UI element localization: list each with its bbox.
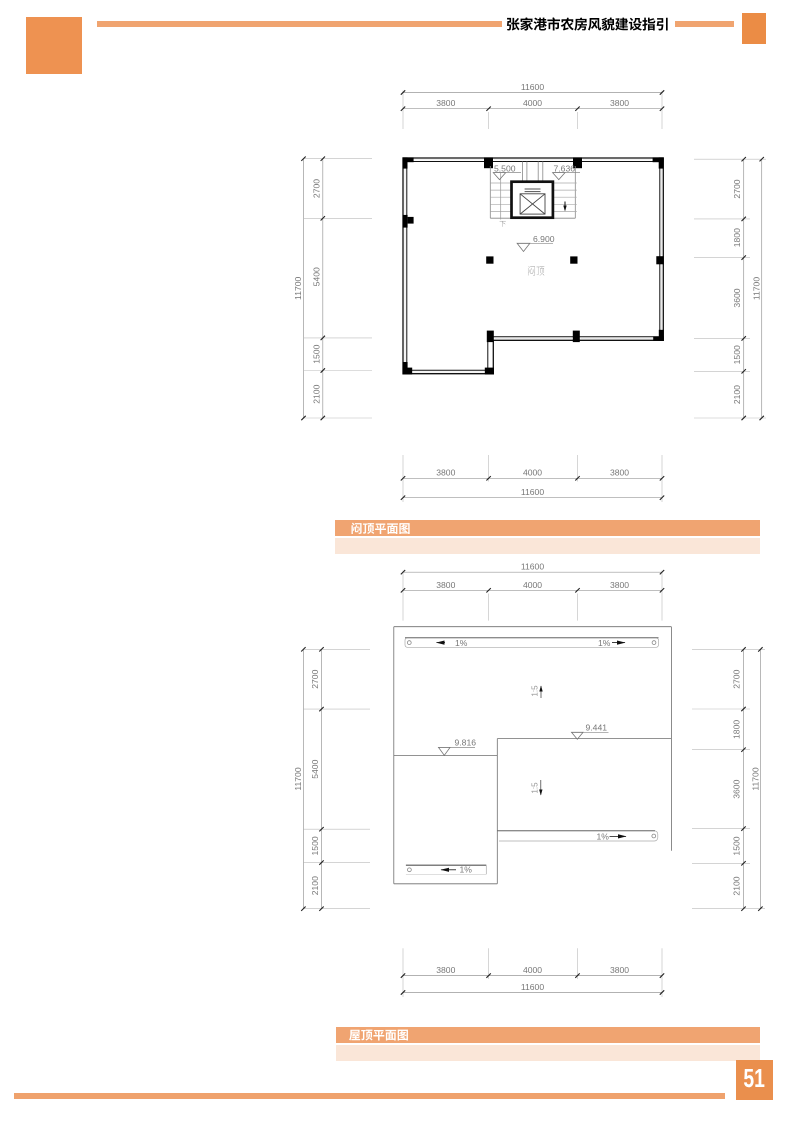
svg-text:9.816: 9.816 <box>455 738 477 748</box>
svg-text:1800: 1800 <box>732 720 742 739</box>
svg-text:1%: 1% <box>455 638 468 648</box>
svg-text:1800: 1800 <box>732 228 742 247</box>
svg-text:9.441: 9.441 <box>586 723 608 733</box>
svg-text:11700: 11700 <box>752 277 762 300</box>
svg-text:11600: 11600 <box>521 982 544 992</box>
svg-text:7.636: 7.636 <box>554 164 576 174</box>
svg-text:4000: 4000 <box>523 965 542 975</box>
svg-text:2100: 2100 <box>312 384 322 403</box>
svg-text:2100: 2100 <box>732 876 742 895</box>
svg-text:11700: 11700 <box>293 276 303 299</box>
svg-text:1%: 1% <box>598 638 611 648</box>
svg-text:11600: 11600 <box>521 82 544 92</box>
svg-text:3800: 3800 <box>610 98 629 108</box>
svg-text:5400: 5400 <box>310 759 320 778</box>
svg-text:11600: 11600 <box>521 562 544 572</box>
svg-text:4000: 4000 <box>523 98 542 108</box>
svg-text:1%: 1% <box>597 832 610 842</box>
svg-text:3600: 3600 <box>732 288 742 307</box>
svg-text:3800: 3800 <box>436 468 455 478</box>
svg-text:1500: 1500 <box>312 344 322 363</box>
svg-text:2700: 2700 <box>732 669 742 688</box>
svg-text:3800: 3800 <box>436 98 455 108</box>
svg-text:3800: 3800 <box>610 468 629 478</box>
svg-text:4000: 4000 <box>523 468 542 478</box>
svg-text:6.900: 6.900 <box>533 234 555 244</box>
svg-text:1%: 1% <box>460 865 473 875</box>
svg-text:1500: 1500 <box>732 345 742 364</box>
svg-text:3800: 3800 <box>436 580 455 590</box>
svg-text:1500: 1500 <box>310 836 320 855</box>
svg-text:11600: 11600 <box>521 487 544 497</box>
svg-text:5.500: 5.500 <box>494 164 516 174</box>
svg-text:11700: 11700 <box>751 767 761 790</box>
svg-text:2100: 2100 <box>310 876 320 895</box>
svg-text:3800: 3800 <box>436 965 455 975</box>
svg-text:4000: 4000 <box>523 580 542 590</box>
svg-text:11700: 11700 <box>293 767 303 790</box>
svg-text:1500: 1500 <box>732 836 742 855</box>
svg-text:2700: 2700 <box>310 669 320 688</box>
svg-text:5400: 5400 <box>312 267 322 286</box>
svg-text:3800: 3800 <box>610 965 629 975</box>
svg-text:1:5: 1:5 <box>530 782 539 794</box>
svg-text:3600: 3600 <box>732 779 742 798</box>
svg-text:2700: 2700 <box>312 179 322 198</box>
svg-text:2100: 2100 <box>732 385 742 404</box>
svg-text:2700: 2700 <box>732 179 742 198</box>
svg-text:3800: 3800 <box>610 580 629 590</box>
svg-text:1:5: 1:5 <box>530 685 539 697</box>
